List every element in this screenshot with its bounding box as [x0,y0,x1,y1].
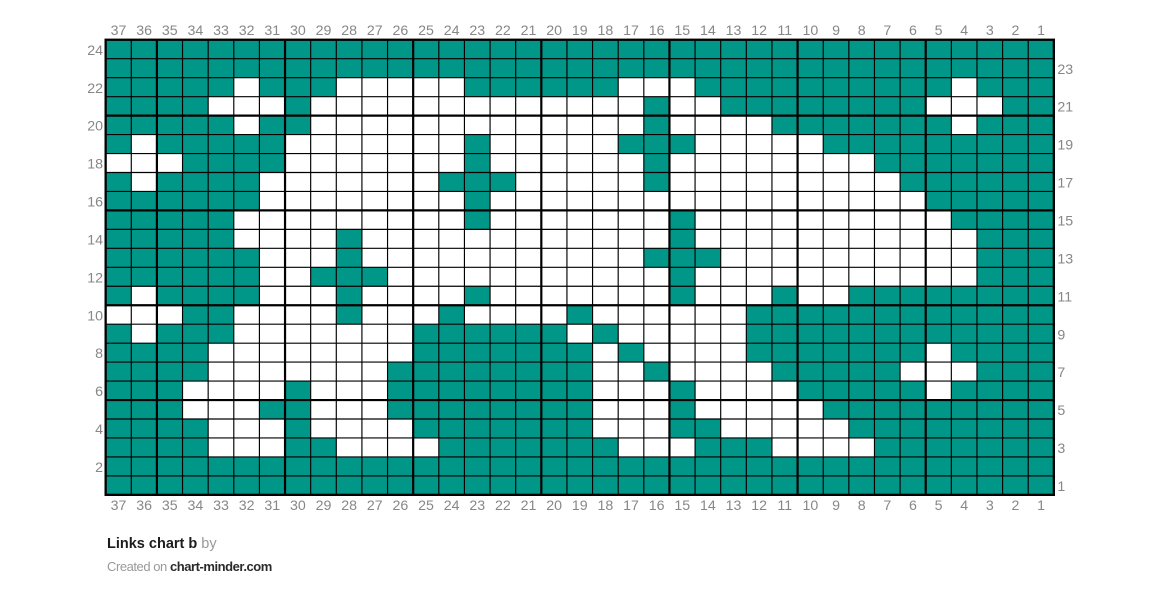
svg-text:3: 3 [1057,441,1065,457]
svg-text:26: 26 [392,498,408,514]
svg-text:7: 7 [1057,365,1065,381]
svg-text:30: 30 [290,23,306,39]
svg-text:15: 15 [674,23,690,39]
svg-text:26: 26 [392,23,408,39]
svg-text:27: 27 [367,498,383,514]
svg-text:29: 29 [316,23,332,39]
svg-text:2: 2 [1011,23,1019,39]
svg-text:23: 23 [1057,62,1073,78]
svg-text:1: 1 [1057,479,1065,495]
svg-text:4: 4 [95,422,103,438]
svg-text:21: 21 [521,23,537,39]
svg-text:15: 15 [1057,213,1073,229]
svg-text:16: 16 [649,23,665,39]
svg-text:35: 35 [162,23,178,39]
svg-text:22: 22 [495,498,511,514]
svg-text:29: 29 [316,498,332,514]
svg-text:12: 12 [87,270,103,286]
svg-text:28: 28 [341,498,357,514]
svg-text:28: 28 [341,23,357,39]
svg-text:12: 12 [751,498,767,514]
svg-text:16: 16 [649,498,665,514]
svg-text:1: 1 [1037,498,1045,514]
svg-text:5: 5 [935,498,943,514]
svg-text:10: 10 [802,23,818,39]
svg-text:19: 19 [572,23,588,39]
svg-text:8: 8 [95,346,103,362]
svg-text:25: 25 [418,498,434,514]
svg-text:27: 27 [367,23,383,39]
svg-text:9: 9 [832,23,840,39]
svg-text:25: 25 [418,23,434,39]
svg-text:3: 3 [986,498,994,514]
svg-text:8: 8 [858,498,866,514]
svg-text:17: 17 [623,23,639,39]
svg-text:4: 4 [960,23,968,39]
svg-text:9: 9 [1057,327,1065,343]
svg-text:24: 24 [444,498,460,514]
svg-text:18: 18 [597,498,613,514]
svg-text:2: 2 [1011,498,1019,514]
svg-text:13: 13 [726,498,742,514]
svg-text:20: 20 [546,498,562,514]
svg-text:18: 18 [87,157,103,173]
svg-text:31: 31 [264,498,280,514]
svg-text:20: 20 [87,119,103,135]
svg-text:36: 36 [136,498,152,514]
svg-text:14: 14 [87,232,103,248]
svg-text:9: 9 [832,498,840,514]
svg-text:23: 23 [469,23,485,39]
svg-text:20: 20 [546,23,562,39]
svg-text:23: 23 [469,498,485,514]
svg-text:5: 5 [935,23,943,39]
svg-text:24: 24 [87,43,103,59]
svg-text:13: 13 [726,23,742,39]
svg-text:37: 37 [111,23,127,39]
svg-text:11: 11 [777,498,792,514]
svg-text:31: 31 [264,23,280,39]
svg-text:32: 32 [239,498,255,514]
svg-text:22: 22 [87,81,103,97]
svg-text:22: 22 [495,23,511,39]
svg-text:6: 6 [95,384,103,400]
svg-text:6: 6 [909,23,917,39]
svg-text:33: 33 [213,23,229,39]
svg-text:10: 10 [87,308,103,324]
svg-text:37: 37 [111,498,127,514]
svg-text:16: 16 [87,195,103,211]
svg-text:19: 19 [1057,138,1073,154]
svg-text:17: 17 [1057,176,1073,192]
svg-text:8: 8 [858,23,866,39]
svg-text:1: 1 [1037,23,1045,39]
svg-text:34: 34 [187,498,203,514]
svg-text:11: 11 [1057,289,1072,305]
svg-text:30: 30 [290,498,306,514]
svg-text:6: 6 [909,498,917,514]
svg-text:18: 18 [597,23,613,39]
svg-text:14: 14 [700,498,716,514]
svg-text:35: 35 [162,498,178,514]
svg-text:2: 2 [95,460,103,476]
svg-text:12: 12 [751,23,767,39]
svg-text:24: 24 [444,23,460,39]
svg-text:13: 13 [1057,251,1073,267]
svg-text:21: 21 [521,498,537,514]
svg-text:10: 10 [802,498,818,514]
svg-text:36: 36 [136,23,152,39]
svg-text:3: 3 [986,23,994,39]
svg-text:7: 7 [883,498,891,514]
svg-text:11: 11 [777,23,792,39]
svg-text:32: 32 [239,23,255,39]
svg-text:17: 17 [623,498,639,514]
svg-text:19: 19 [572,498,588,514]
svg-text:33: 33 [213,498,229,514]
svg-text:14: 14 [700,23,716,39]
svg-text:4: 4 [960,498,968,514]
svg-text:34: 34 [187,23,203,39]
svg-text:21: 21 [1057,100,1073,116]
svg-text:15: 15 [674,498,690,514]
svg-text:7: 7 [883,23,891,39]
svg-text:5: 5 [1057,403,1065,419]
